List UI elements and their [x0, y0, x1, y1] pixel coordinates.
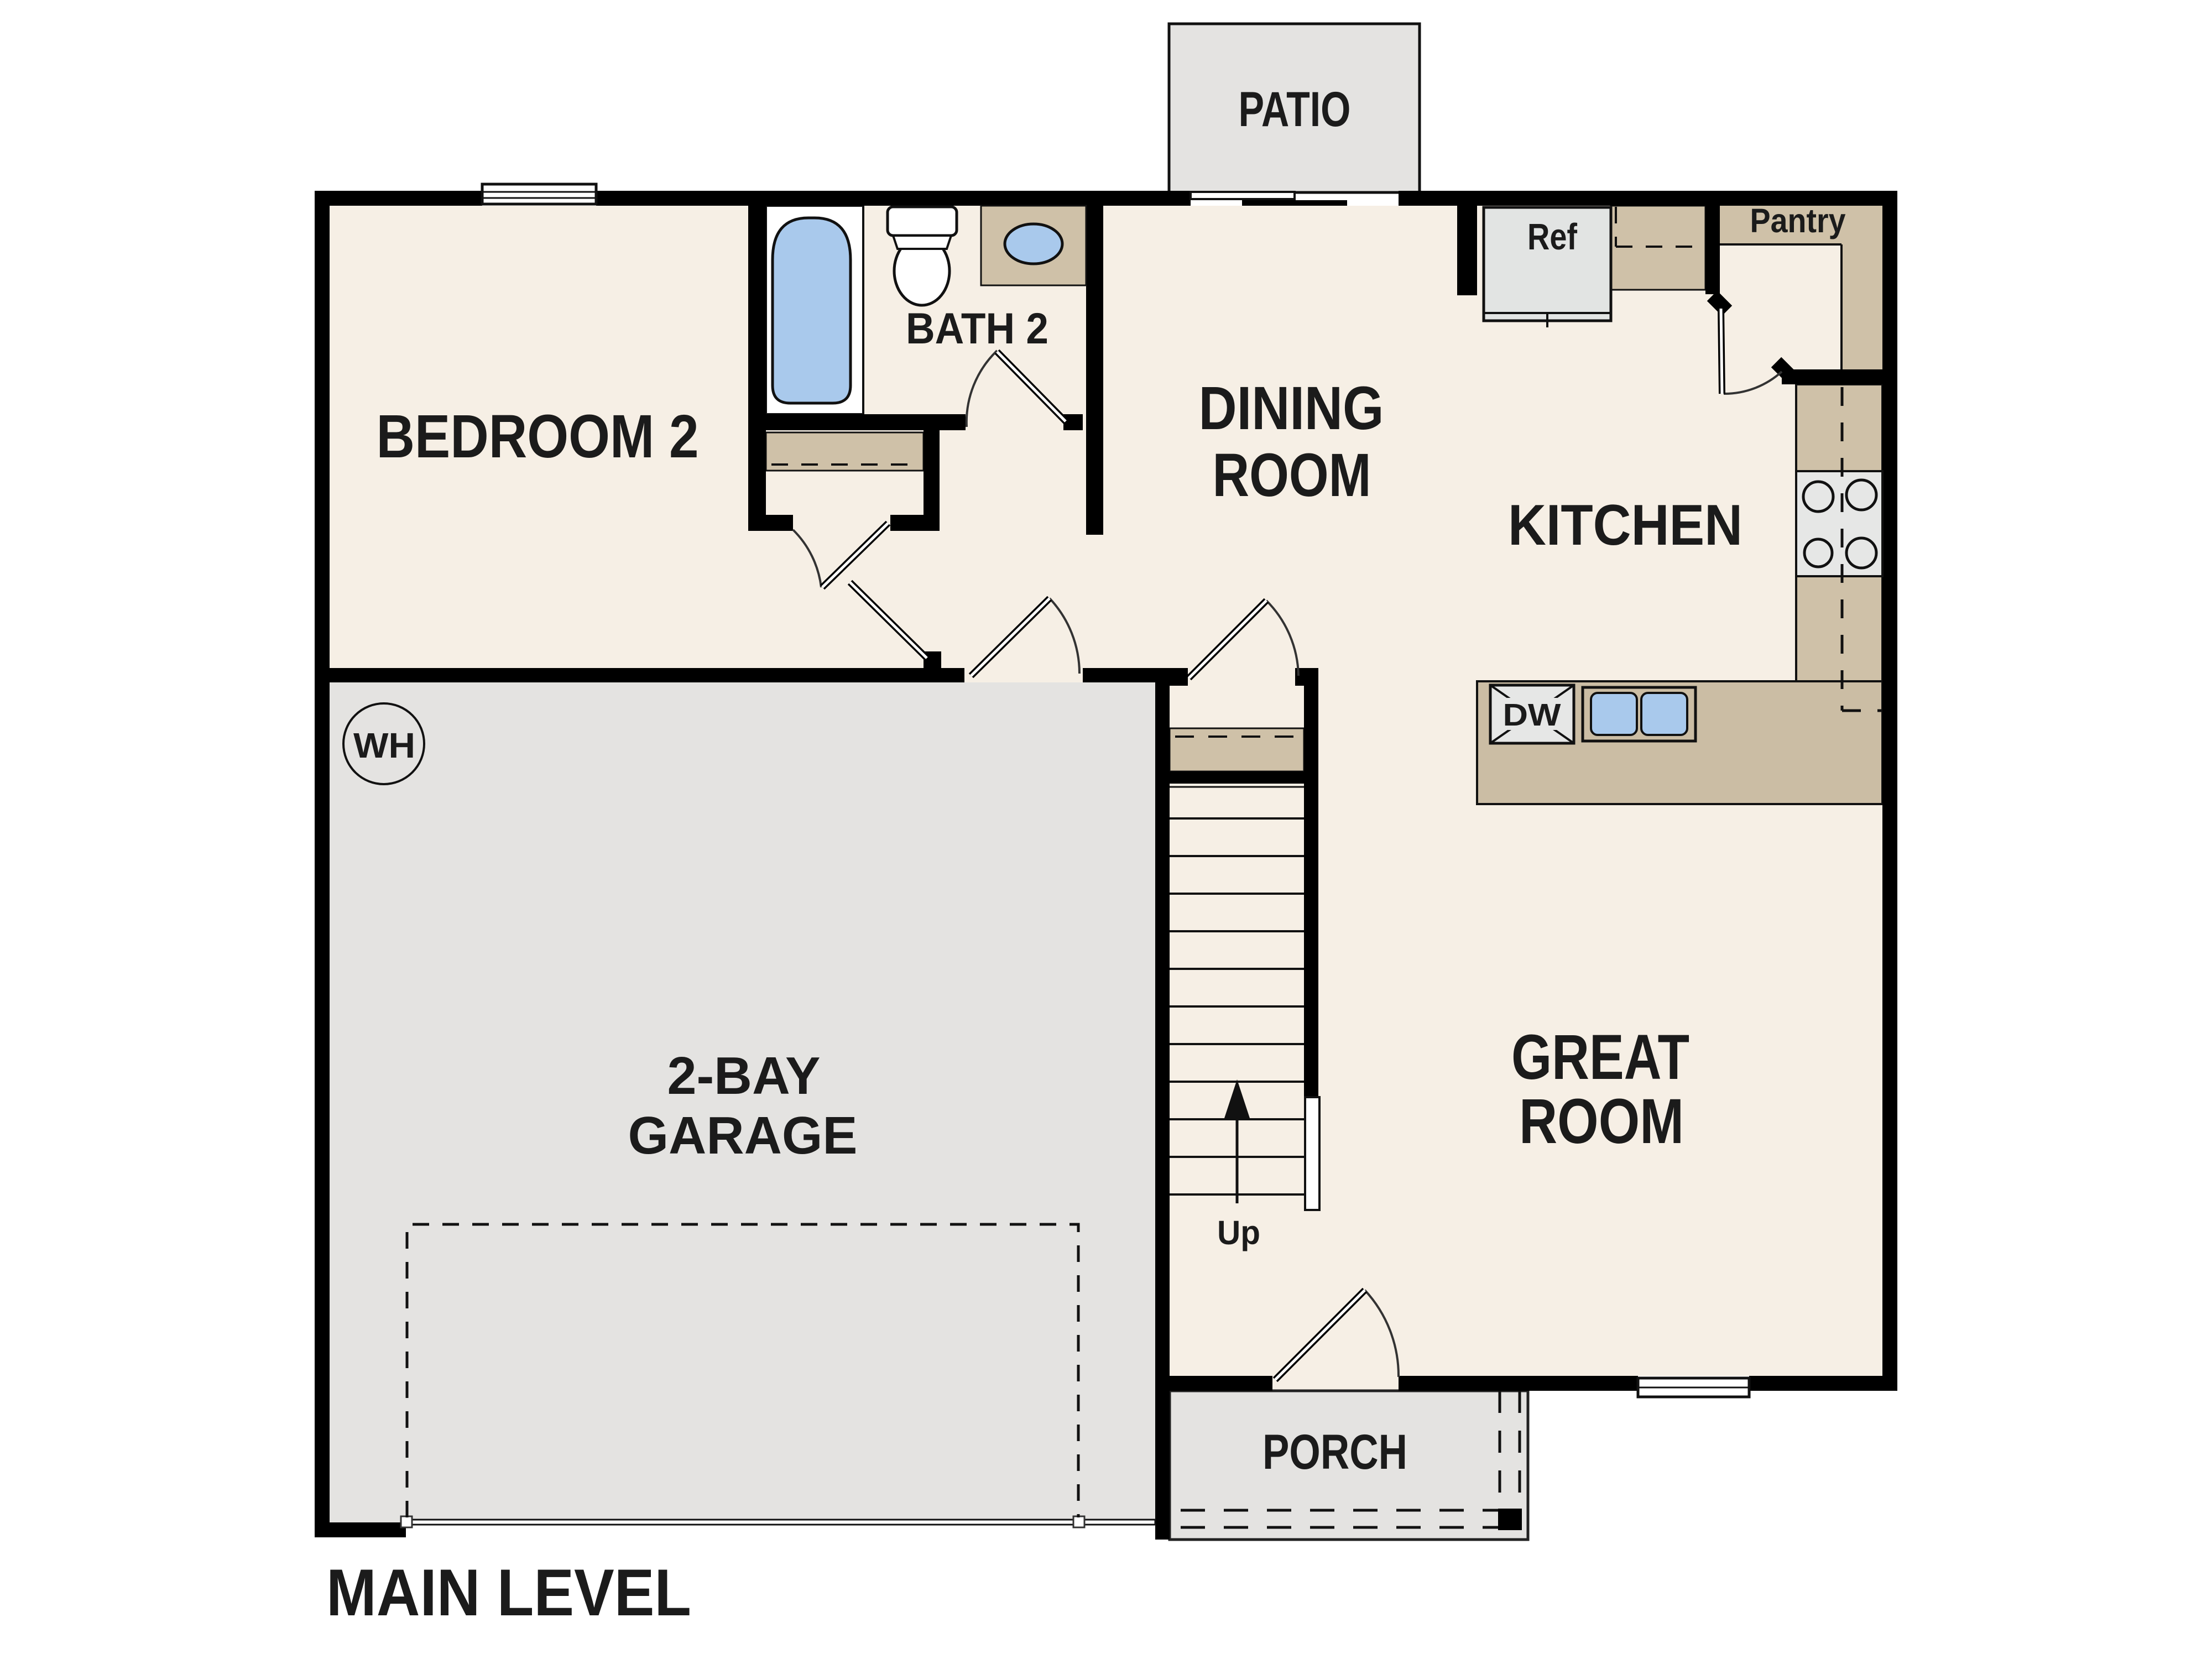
svg-text:Pantry: Pantry — [1750, 202, 1846, 239]
svg-text:BEDROOM 2: BEDROOM 2 — [377, 403, 699, 471]
svg-text:DINING: DINING — [1199, 374, 1384, 442]
svg-text:2-BAY: 2-BAY — [667, 1046, 821, 1105]
svg-text:DW: DW — [1503, 697, 1561, 733]
svg-text:GREAT: GREAT — [1511, 1022, 1689, 1093]
svg-text:KITCHEN: KITCHEN — [1508, 493, 1743, 557]
svg-text:PORCH: PORCH — [1262, 1424, 1407, 1479]
svg-text:ROOM: ROOM — [1519, 1086, 1684, 1157]
svg-text:GARAGE: GARAGE — [628, 1106, 858, 1165]
svg-text:ROOM: ROOM — [1213, 441, 1371, 509]
svg-text:BATH 2: BATH 2 — [906, 304, 1048, 353]
svg-text:PATIO: PATIO — [1239, 81, 1351, 137]
svg-text:MAIN LEVEL: MAIN LEVEL — [326, 1556, 691, 1630]
svg-text:Up: Up — [1217, 1214, 1260, 1251]
svg-text:WH: WH — [353, 726, 415, 765]
svg-text:Ref: Ref — [1527, 216, 1578, 258]
